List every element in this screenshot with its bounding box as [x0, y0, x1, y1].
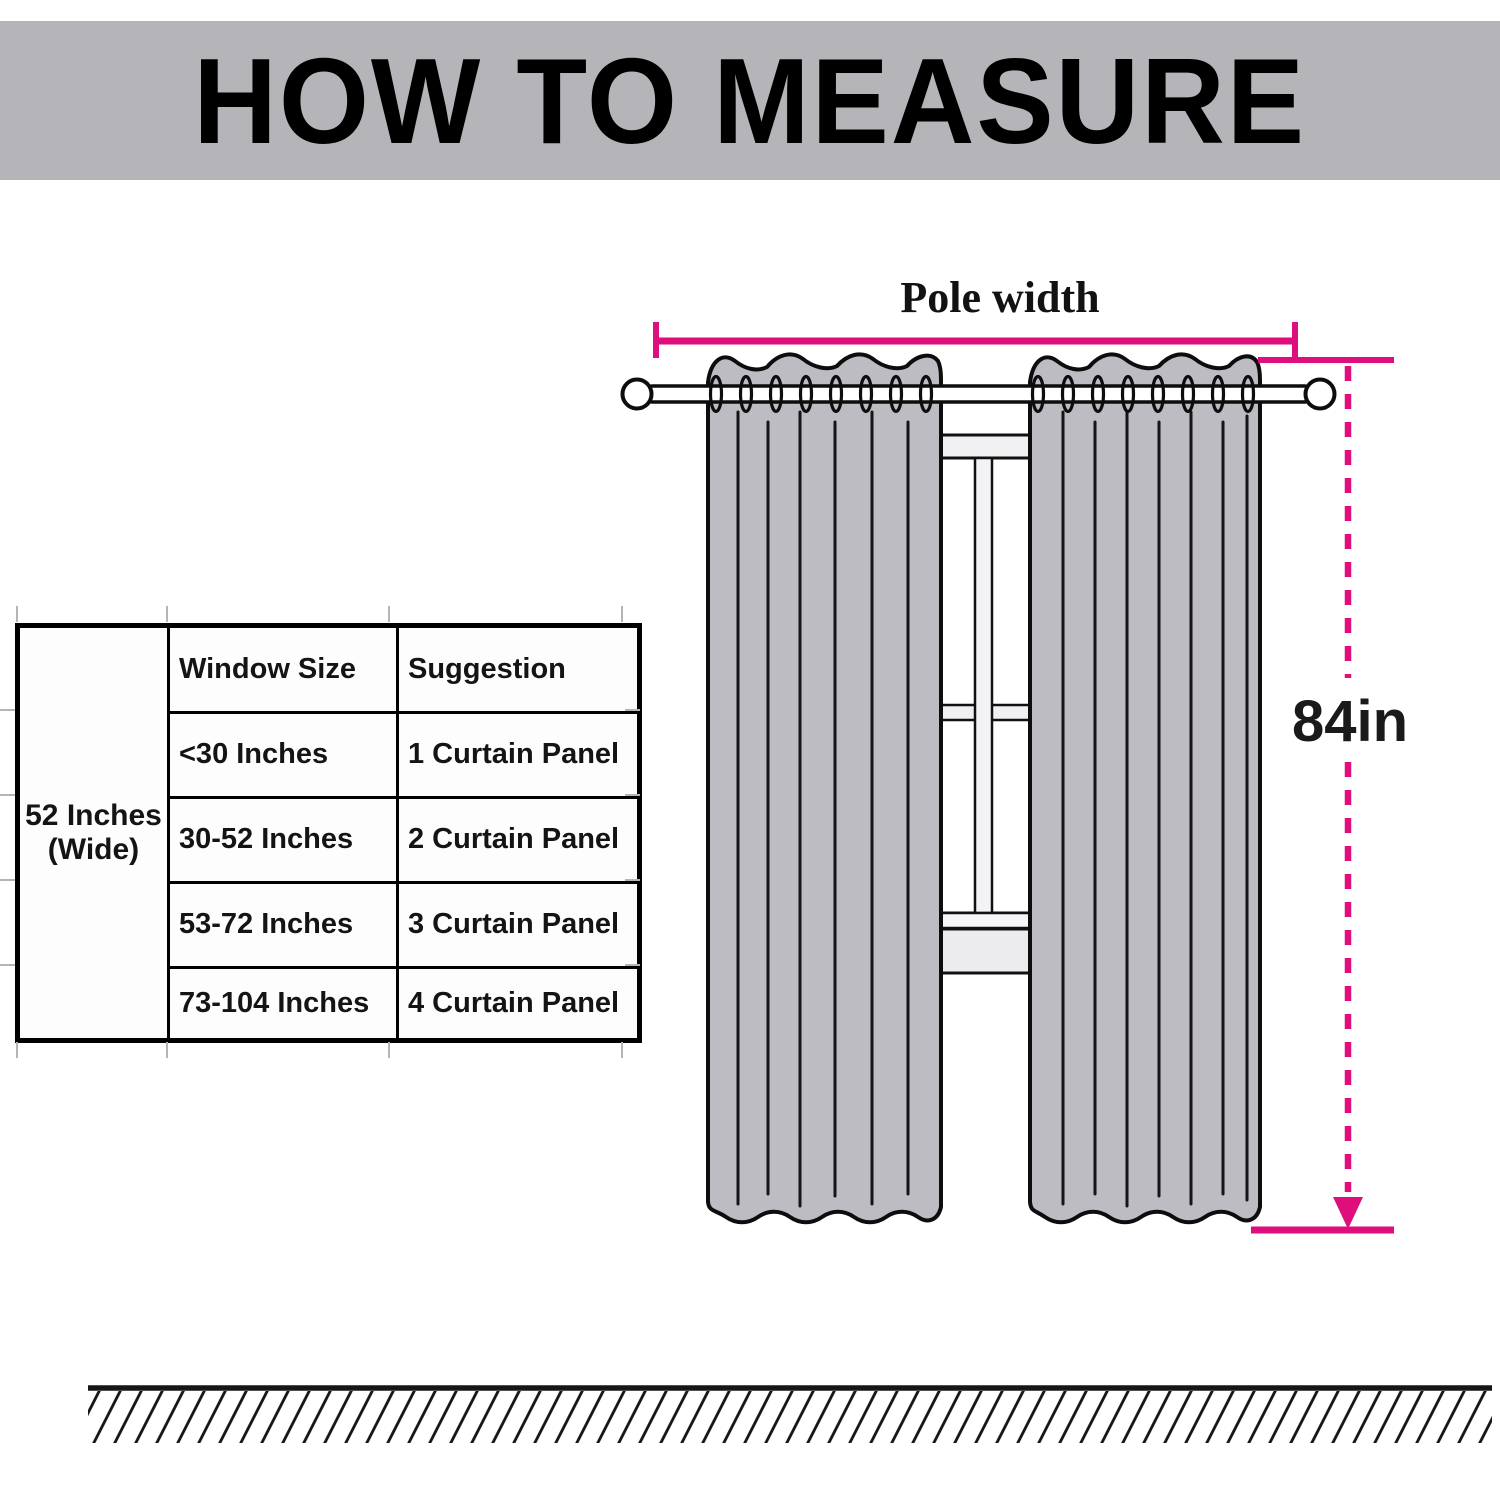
floor — [88, 1388, 1492, 1443]
pole-width-label: Pole width — [850, 276, 1150, 320]
floor-hatching — [88, 1391, 1492, 1443]
how-to-measure-infographic: HOW TO MEASURE 52 Inches (Wide) Window S… — [0, 0, 1500, 1500]
curtain-panel-left-fabric — [708, 354, 941, 1222]
height-measure — [1251, 360, 1394, 1230]
curtain-rod-bar — [650, 386, 1307, 402]
height-label: 84in — [1275, 693, 1425, 751]
curtain-panel-left — [708, 354, 941, 1222]
down-arrow-icon — [1333, 1197, 1363, 1229]
curtain-panel-right — [1030, 354, 1260, 1222]
curtain-rod-finial-right — [1306, 380, 1335, 409]
window-vertical-mullion — [975, 458, 992, 913]
pole-width-measure — [656, 322, 1295, 358]
curtain-rod-finial-left — [623, 380, 652, 409]
